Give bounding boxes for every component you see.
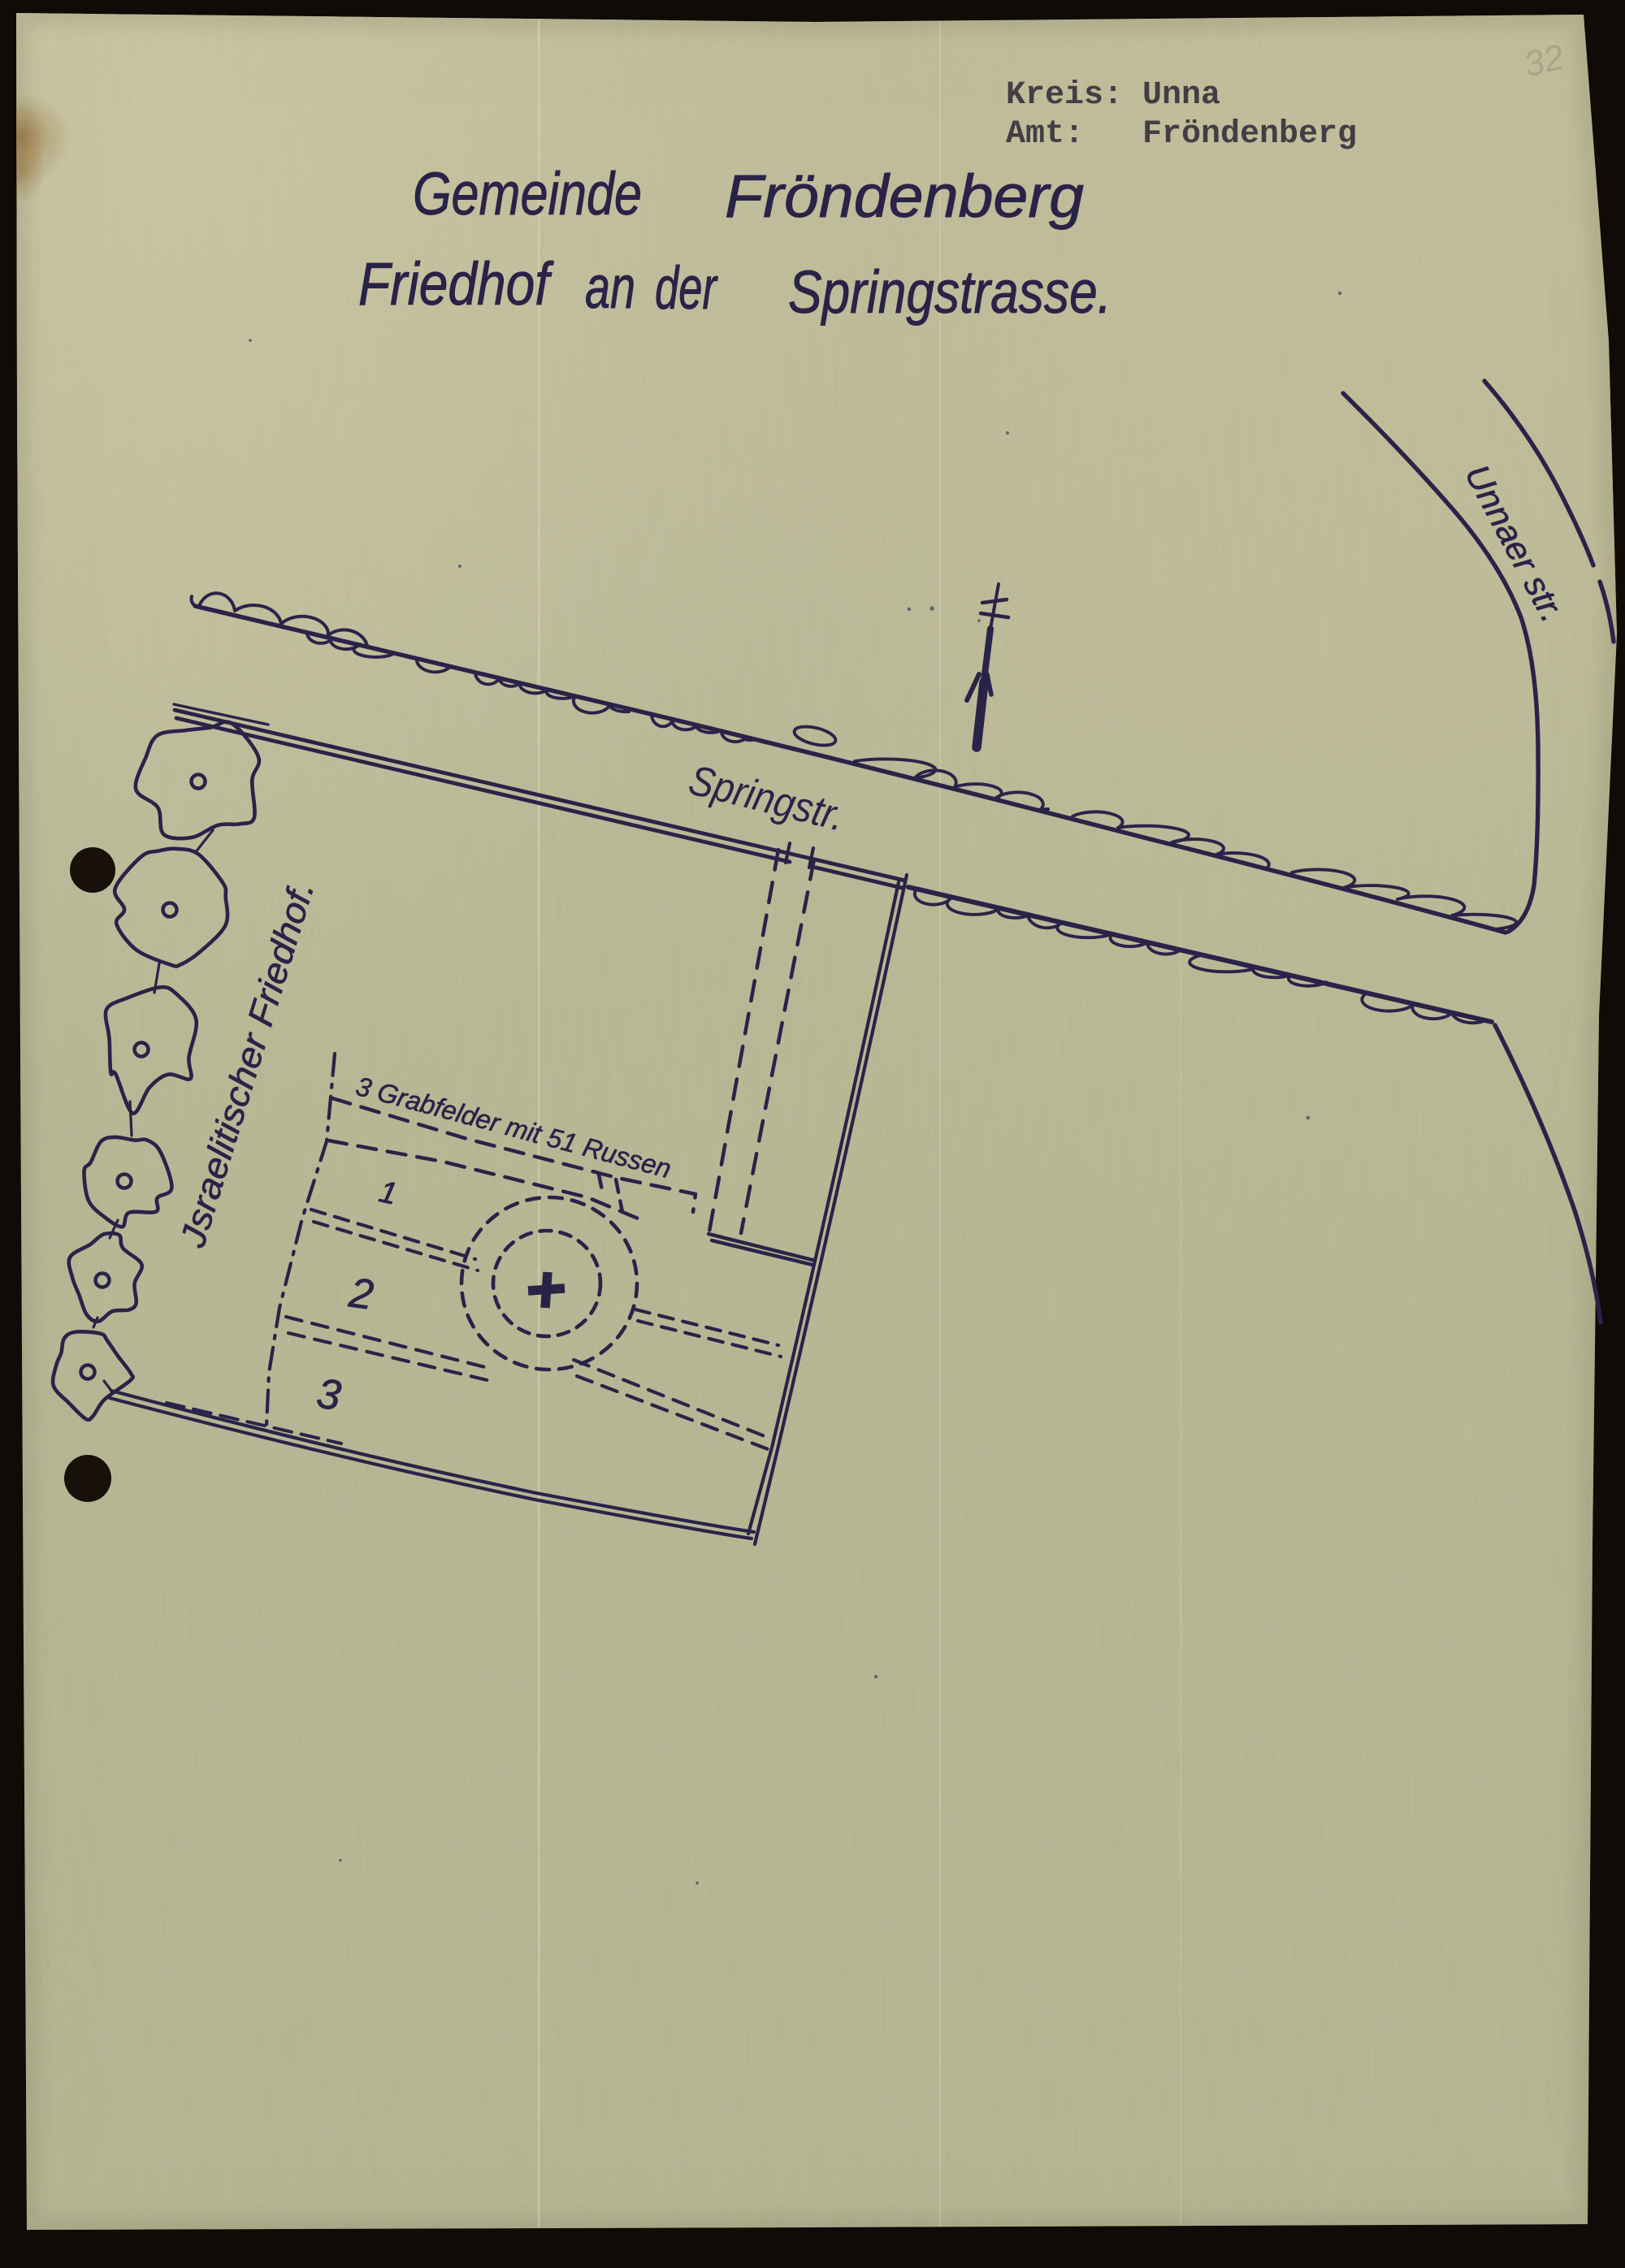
svg-text:der: der (655, 254, 718, 322)
svg-text:Springstrasse.: Springstrasse. (788, 258, 1111, 326)
svg-text:Gemeinde: Gemeinde (413, 160, 642, 227)
svg-text:Fröndenberg: Fröndenberg (1142, 116, 1357, 153)
svg-text:Fröndenberg: Fröndenberg (725, 162, 1084, 230)
svg-text:an: an (585, 253, 635, 321)
svg-text:Amt:: Amt: (1006, 116, 1084, 153)
svg-text:Friedhof: Friedhof (358, 250, 554, 318)
svg-text:Kreis: Unna: Kreis: Unna (1006, 77, 1220, 114)
